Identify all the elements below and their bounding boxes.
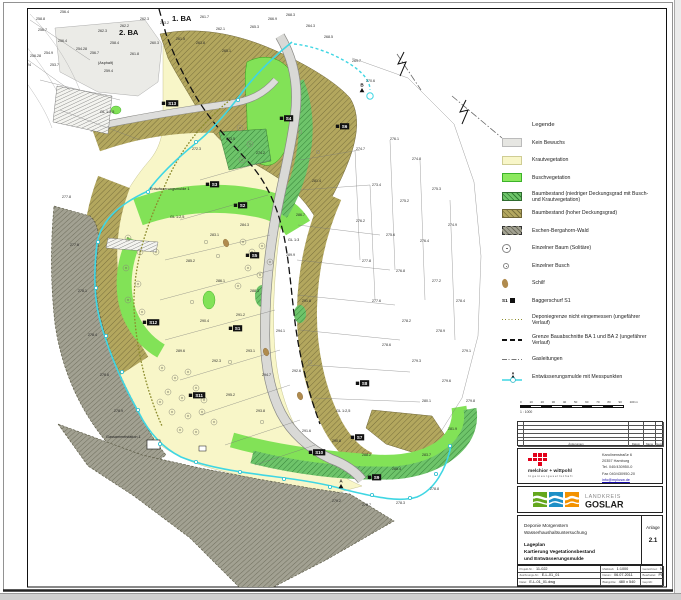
scalebar-bar — [520, 405, 624, 408]
scalebar-tick: 0 — [520, 400, 522, 404]
spot-elevation: 289.9 — [286, 253, 295, 257]
spot-elevation: 256.28 — [30, 54, 41, 58]
spot-elevation: 286.1 — [216, 279, 225, 283]
spot-elevation: 281.4 — [312, 179, 321, 183]
ba-section-label: 1. BA — [172, 14, 192, 23]
svg-text:GOSLAR: GOSLAR — [585, 499, 624, 509]
single-bush-icon — [503, 263, 509, 269]
file-name: E-L-01_01.dwg — [529, 580, 555, 584]
spot-elevation: 279.8 — [466, 399, 475, 403]
legend-item: Baumbestand (niedriger Deckungsgrad mit … — [502, 191, 664, 203]
spot-elevation: 269.7 — [352, 59, 361, 63]
gas-station-building — [147, 440, 160, 449]
legend-title: Legende — [532, 122, 664, 128]
spot-elevation: 278.4 — [456, 299, 465, 303]
sheet-size: 480 x 540 — [619, 580, 636, 584]
channel-measure-point — [434, 472, 437, 475]
channel-measure-point — [136, 408, 139, 411]
busch-patch — [203, 291, 215, 309]
spot-elevation: 268.3 — [286, 13, 295, 17]
small-building — [199, 446, 206, 451]
map-area-label: GL 1:2,5 — [170, 215, 184, 219]
spot-elevation: 293.1 — [246, 349, 255, 353]
map-area-label: GL 1:3 — [288, 238, 299, 242]
scalebar: 0102030405060708090100 m 1 : 1000 — [520, 400, 638, 414]
spot-elevation: 278.7 — [362, 503, 371, 507]
spot-elevation: 278.9 — [114, 409, 123, 413]
channel-measure-point — [104, 334, 107, 337]
spot-elevation: 256.7 — [90, 51, 99, 55]
legend-item: Krautvegetation — [502, 156, 664, 165]
drawn-by: N — [660, 567, 663, 571]
dashdot-line-key — [502, 355, 522, 364]
anlage-number: 2.1 — [642, 537, 664, 544]
spot-elevation: 278.8 — [430, 487, 439, 491]
scalebar-tick: 50 — [574, 400, 577, 404]
spot-elevation: 292.6 — [292, 369, 301, 373]
revision-col-gepr: Gepr. — [656, 441, 664, 447]
svg-text:S9: S9 — [374, 475, 380, 480]
excavation-label: S1 — [502, 298, 508, 303]
spot-elevation: 279.1 — [462, 349, 471, 353]
drawing-number: E-L-01_01 — [542, 573, 560, 577]
spot-elevation: 278.3 — [396, 501, 405, 505]
spot-elevation: 278.4 — [88, 333, 97, 337]
spot-elevation: 274.8 — [412, 157, 421, 161]
scalebar-tick: 20 — [541, 400, 544, 404]
spot-elevation: 288.3 — [250, 289, 259, 293]
scalebar-tick: 60 — [585, 400, 588, 404]
dotted-line-key — [502, 315, 522, 324]
channel-measure-point — [328, 485, 331, 488]
svg-text:S12: S12 — [149, 320, 157, 325]
dashed-line-key — [502, 336, 522, 345]
svg-text:S7: S7 — [357, 435, 363, 440]
channel-measure-point — [238, 470, 241, 473]
svg-text:S11: S11 — [195, 393, 203, 398]
spot-elevation: 273.4 — [372, 183, 381, 187]
legend-item: Deponiegrenze nicht eingemessen (ungefäh… — [502, 314, 664, 326]
spot-elevation: 262.1 — [216, 27, 225, 31]
company-address: Karolinenstraße 6 20357 Hamburg Tel. 040… — [602, 452, 635, 483]
spot-elevation: 262.3 — [140, 17, 149, 21]
project-number: 11-022 — [536, 567, 548, 571]
swatch-eschen-bergahorn-wald — [502, 226, 522, 235]
project-name: Deponie Morgenstern Wasserhaushaltsunter… — [524, 522, 638, 536]
drainage-line-key: A — [502, 371, 522, 383]
scalebar-tick: 100 m — [630, 400, 638, 404]
spot-elevation: 277.6 — [70, 243, 79, 247]
spot-elevation: 275.2 — [400, 199, 409, 203]
legend-item: Schilf — [502, 279, 664, 288]
legend: Legende Kein Bewuchs Krautvegetation Bus… — [502, 122, 664, 390]
spot-elevation: 254.28 — [76, 47, 87, 51]
channel-measure-point — [158, 442, 161, 445]
spot-elevation: 292.3 — [212, 359, 221, 363]
company-email: info@mplusw.de — [602, 477, 635, 483]
spot-elevation: 273.5 — [226, 137, 235, 141]
spot-elevation: 274.2 — [256, 151, 265, 155]
spot-elevation: 291.6 — [302, 429, 311, 433]
spot-elevation: 277.8 — [362, 259, 371, 263]
spot-elevation: 263.2 — [160, 21, 169, 25]
drawing-title: Lageplan Kartierung Vegetationsbestand u… — [524, 542, 638, 563]
spot-elevation: 260.3 — [150, 41, 159, 45]
spot-elevation: 259.4 — [104, 69, 113, 73]
scalebar-tick: 70 — [596, 400, 599, 404]
legend-item: Einzelner Baum (Solitäre) — [502, 244, 664, 253]
channel-measure-point — [370, 493, 373, 496]
spot-elevation: 274.9 — [448, 223, 457, 227]
spot-elevation: 288.2 — [362, 453, 371, 457]
company-logo: melchior + wittpohl Ingenieurgesellschaf… — [528, 453, 573, 478]
spot-elevation: 289.6 — [176, 349, 185, 353]
swatch-krautvegetation — [502, 156, 522, 165]
swatch-kein-bewuchs — [502, 138, 522, 147]
spot-elevation: 253.7 — [50, 63, 59, 67]
legend-item: Baumbestand (hoher Deckungsgrad) — [502, 209, 664, 218]
company-subtitle: Ingenieurgesellschaft — [528, 474, 573, 478]
svg-text:S2: S2 — [240, 203, 246, 208]
spot-elevation: 284.3 — [240, 223, 249, 227]
ba-section-label: 2. BA — [119, 28, 139, 37]
swatch-buschvegetation — [502, 173, 522, 182]
company-logo-dots-icon — [528, 453, 548, 466]
spot-elevation: 264.3 — [306, 24, 315, 28]
scalebar-tick: 90 — [618, 400, 621, 404]
spot-elevation: 265.1 — [222, 49, 231, 53]
svg-text:A: A — [512, 371, 515, 375]
spot-elevation: 254.9 — [44, 51, 53, 55]
channel-measure-point — [194, 140, 197, 143]
baumbestand-niedrig-patch — [294, 305, 306, 323]
spot-elevation: 279.6 — [442, 379, 451, 383]
spot-elevation: 277.2 — [432, 279, 441, 283]
legend-item: Buschvegetation — [502, 173, 664, 182]
client-logo-block: LANDKREIS GOSLAR — [517, 486, 663, 513]
channel-measure-point — [194, 460, 197, 463]
revision-col-datum: Datum — [629, 441, 644, 447]
spot-elevation: 277.8 — [62, 195, 71, 199]
horizontal-scrollbar[interactable] — [0, 593, 681, 600]
spot-elevation: 263.8 — [196, 41, 205, 45]
plan-viewer: 255.24256.28254.9256.24253.7258.8256.425… — [0, 0, 681, 600]
scale-value: 1:1000 — [617, 567, 629, 571]
spot-elevation: 278.6 — [382, 343, 391, 347]
svg-text:S13: S13 — [168, 101, 176, 106]
spot-elevation: 262.3 — [98, 29, 107, 33]
spot-elevation: 256.4 — [60, 10, 69, 14]
svg-text:S4: S4 — [286, 116, 292, 121]
legend-item: Gasleitungen — [502, 355, 664, 364]
spot-elevation: 270.6 — [366, 79, 375, 83]
scalebar-ticks: 0102030405060708090100 m — [520, 400, 638, 404]
landkreis-goslar-logo: LANDKREIS GOSLAR — [531, 490, 649, 510]
spot-elevation: 279.2 — [332, 499, 341, 503]
vertical-scrollbar[interactable] — [674, 0, 681, 600]
map-area-label: Entwässerungsmulde 1 — [150, 187, 189, 191]
channel-measure-point — [94, 286, 97, 289]
scalebar-tick: 30 — [552, 400, 555, 404]
channel-measure-point — [282, 477, 285, 480]
spot-elevation: 276.8 — [396, 269, 405, 273]
company-block: melchior + wittpohl Ingenieurgesellschaf… — [517, 448, 663, 484]
spot-elevation: 278.6 — [100, 373, 109, 377]
outfall-point — [367, 93, 373, 99]
spot-elevation: 294.7 — [262, 373, 271, 377]
spot-elevation: 295.2 — [226, 393, 235, 397]
spot-elevation: 278.9 — [436, 329, 445, 333]
title-block-fields: Projekt-Nr.:11-022 Maßstab:1:1000 Gezeic… — [517, 565, 663, 587]
spot-elevation: 276.4 — [420, 239, 429, 243]
single-tree-icon — [502, 244, 511, 253]
spot-elevation: 281.9 — [448, 427, 457, 431]
revision-col-name: Name — [644, 441, 656, 447]
map-area-label: Gassammelstation 1 — [106, 435, 141, 439]
edited-by: PD — [659, 573, 664, 577]
spot-elevation: 293.8 — [256, 409, 265, 413]
swatch-baumbestand-niedrig — [502, 192, 522, 201]
legend-item: Grenze Bauabschnitte BA 1 und BA 2 (unge… — [502, 334, 664, 346]
spot-elevation: 291.2 — [236, 313, 245, 317]
svg-text:S3: S3 — [212, 182, 218, 187]
channel-measure-point — [448, 444, 451, 447]
spot-elevation: 261.8 — [130, 52, 139, 56]
channel-measure-point — [96, 240, 99, 243]
channel-measure-point — [408, 496, 411, 499]
spot-elevation: 256.7 — [38, 28, 47, 32]
spot-elevation: 277.6 — [372, 299, 381, 303]
spot-elevation: 276.2 — [356, 219, 365, 223]
excavation-square-icon — [510, 298, 515, 303]
company-name: melchior + wittpohl — [528, 469, 573, 474]
reed-icon — [501, 278, 509, 288]
spot-elevation: 276.1 — [390, 137, 399, 141]
spot-elevation: 258.4 — [110, 41, 119, 45]
svg-text:S10: S10 — [315, 450, 323, 455]
legend-item: Kein Bewuchs — [502, 138, 664, 147]
svg-text:S5: S5 — [252, 253, 258, 258]
date-value: 06.07.2011 — [614, 573, 633, 577]
svg-text:S8: S8 — [362, 381, 368, 386]
scalebar-tick: 10 — [529, 400, 532, 404]
spot-elevation: 285.2 — [186, 259, 195, 263]
spot-elevation: 279.3 — [412, 359, 421, 363]
spot-elevation: 256.4 — [58, 39, 67, 43]
spot-elevation: 294.1 — [276, 329, 285, 333]
scalebar-tick: 40 — [563, 400, 566, 404]
legend-item: A Entwässerungsmulde mit Messpunkten — [502, 372, 664, 381]
spot-elevation: 274.7 — [356, 147, 365, 151]
map-area-label: GL 1:2,5 — [336, 409, 350, 413]
spot-elevation: 278.2 — [402, 319, 411, 323]
spot-elevation: 290.4 — [200, 319, 209, 323]
spot-elevation: 268.5 — [324, 35, 333, 39]
spot-elevation: 272.3 — [192, 147, 201, 151]
legend-item: Eschen-Bergahorn-Wald — [502, 226, 664, 235]
spot-elevation: 275.3 — [432, 187, 441, 191]
spot-elevation: 283.1 — [210, 233, 219, 237]
legend-item: S1 Baggerschurf S1 — [502, 296, 664, 305]
spot-elevation: 291.8 — [302, 299, 311, 303]
channel-measure-point — [120, 370, 123, 373]
spot-elevation: 266.9 — [268, 17, 277, 21]
revision-col-aenderungen: Änderungen — [524, 441, 629, 447]
spot-elevation: 290.8 — [332, 439, 341, 443]
spot-elevation: 275.6 — [386, 233, 395, 237]
spot-elevation: 280.1 — [422, 399, 431, 403]
spot-elevation: 278.1 — [78, 289, 87, 293]
scalebar-tick: 80 — [607, 400, 610, 404]
spot-elevation: 261.5 — [176, 37, 185, 41]
swatch-baumbestand-hoch — [502, 209, 522, 218]
spot-elevation: 285.4 — [392, 467, 401, 471]
spot-elevation: 283.7 — [422, 453, 431, 457]
revision-table: Änderungen Datum Name Gepr. — [517, 421, 663, 446]
svg-text:S1: S1 — [235, 326, 241, 331]
spot-elevation: 261.7 — [200, 15, 209, 19]
spot-elevation: 286.7 — [296, 213, 305, 217]
title-block: Deponie Morgenstern Wasserhaushaltsunter… — [517, 515, 663, 565]
svg-text:S6: S6 — [342, 124, 348, 129]
spot-elevation: 265.3 — [250, 25, 259, 29]
scale-ratio: 1 : 1000 — [520, 410, 638, 414]
map-area-label: (Asphalt) — [98, 61, 114, 65]
channel-measure-point — [236, 98, 239, 101]
spot-elevation: 258.8 — [36, 17, 45, 21]
legend-item: Einzelner Busch — [502, 261, 664, 270]
map-area-label: GL 1:2,5 — [100, 110, 114, 114]
anlage-label: Anlage — [642, 525, 664, 530]
